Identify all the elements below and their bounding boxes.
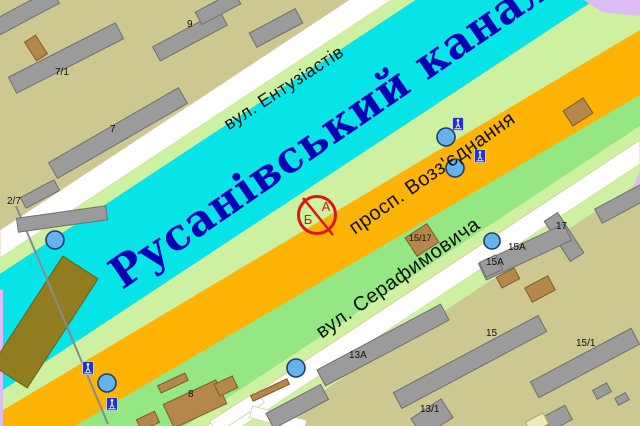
stop-icon[interactable]	[98, 374, 116, 392]
house-number: 15А	[508, 243, 526, 253]
house-number: 15/1	[576, 339, 595, 349]
house-number: 2/7	[7, 197, 21, 207]
city-map: Б А вул. Ентузіастів Русанівський канал …	[0, 0, 640, 426]
house-number: 15	[486, 329, 497, 339]
house-number: 7	[110, 125, 116, 135]
house-number: 17	[556, 222, 567, 232]
stop-icon[interactable]	[287, 359, 305, 377]
stop-icon[interactable]	[437, 128, 455, 146]
house-number: 8	[188, 390, 194, 400]
stop-icon[interactable]	[484, 233, 500, 249]
marker-side-b: Б	[304, 212, 313, 227]
stop-icon[interactable]	[46, 231, 64, 249]
house-number: 15/17	[409, 233, 432, 243]
pedestrian-crossing-icon	[83, 362, 94, 375]
pedestrian-crossing-icon	[107, 398, 118, 411]
house-number: 13А	[349, 351, 367, 361]
house-number: 7/1	[55, 68, 69, 78]
building-7-1	[8, 23, 123, 94]
marker-side-a: А	[322, 199, 331, 214]
house-number: 13/1	[420, 405, 439, 415]
house-number: 9	[187, 20, 193, 30]
pedestrian-crossing-icon	[453, 118, 464, 131]
house-number: 15A	[486, 258, 504, 268]
